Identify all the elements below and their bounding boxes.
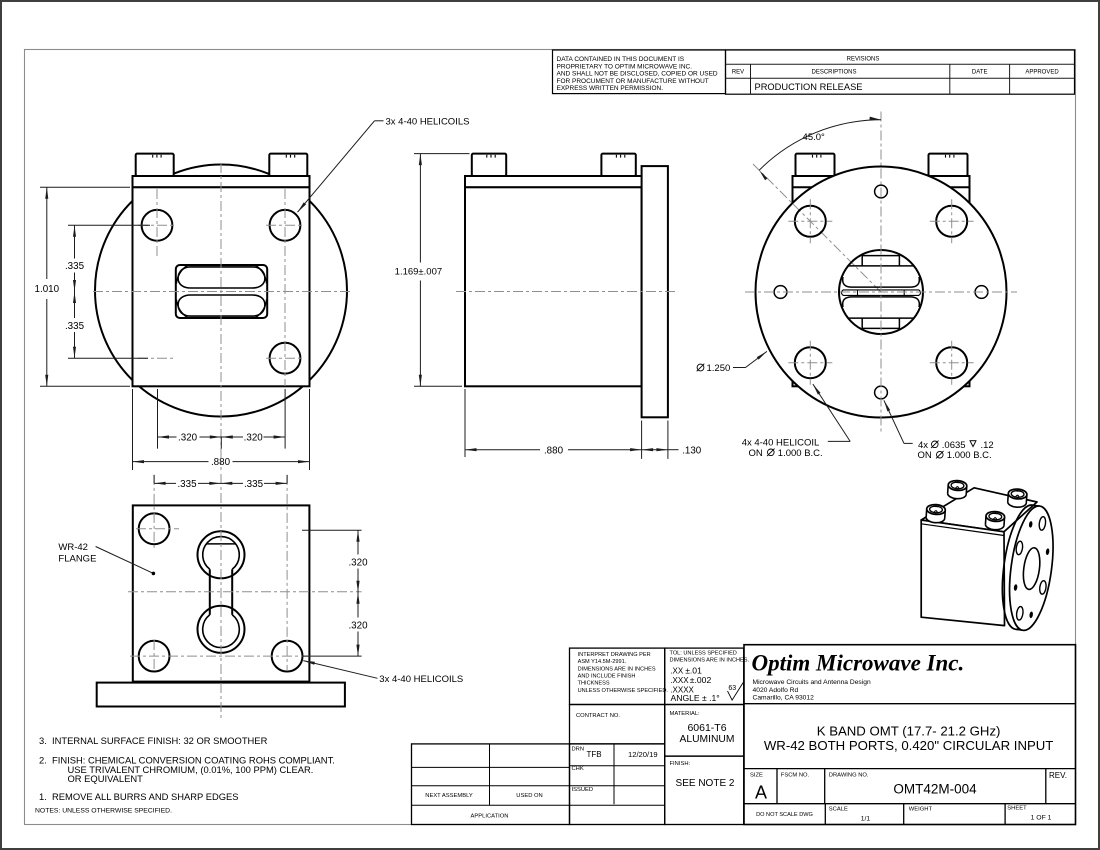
svg-text:3x 4-40 HELICOILS: 3x 4-40 HELICOILS <box>386 116 470 127</box>
svg-text:FINISH:: FINISH: <box>670 761 691 767</box>
svg-text:CONTRACT NO.: CONTRACT NO. <box>576 713 620 719</box>
svg-text:SHEET: SHEET <box>1007 806 1027 812</box>
svg-text:.320: .320 <box>244 433 264 444</box>
svg-text:.320: .320 <box>348 558 368 569</box>
svg-text:.0635: .0635 <box>942 440 966 451</box>
svg-text:K BAND OMT (17.7- 21.2 GHz): K BAND OMT (17.7- 21.2 GHz) <box>817 723 1001 738</box>
svg-text:NEXT ASSEMBLY: NEXT ASSEMBLY <box>425 793 473 799</box>
svg-text:1 OF 1: 1 OF 1 <box>1031 815 1052 822</box>
svg-text:REV.: REV. <box>1049 771 1067 780</box>
svg-text:MATERIAL:: MATERIAL: <box>670 711 701 717</box>
svg-text:.335: .335 <box>177 479 197 490</box>
svg-text:63: 63 <box>728 685 736 692</box>
svg-text:1.010: 1.010 <box>35 284 60 295</box>
svg-text:1.169±.007: 1.169±.007 <box>395 267 442 278</box>
svg-text:APPROVED: APPROVED <box>1025 70 1059 76</box>
svg-text:ISSUED: ISSUED <box>572 787 594 793</box>
svg-text:12/20/19: 12/20/19 <box>628 750 658 759</box>
svg-text:OR EQUIVALENT: OR EQUIVALENT <box>68 773 144 784</box>
svg-text:TFB: TFB <box>587 750 602 759</box>
svg-text:3. INTERNAL SURFACE FINISH: 3: 3. INTERNAL SURFACE FINISH: 32 OR SMOOTH… <box>39 735 268 746</box>
svg-text:SCALE: SCALE <box>829 806 848 812</box>
svg-text:DATA CONTAINED IN THIS DOCUMEN: DATA CONTAINED IN THIS DOCUMENT IS <box>557 56 685 63</box>
svg-text:.335: .335 <box>65 321 85 332</box>
svg-text:WEIGHT: WEIGHT <box>909 806 933 812</box>
svg-text:ALUMINUM: ALUMINUM <box>680 734 735 745</box>
svg-text:USED ON: USED ON <box>516 793 542 799</box>
svg-text:Camarillo, CA 93012: Camarillo, CA 93012 <box>753 694 815 701</box>
svg-text:Microwave Circuits and Antenna: Microwave Circuits and Antenna Design <box>753 679 871 686</box>
svg-text:.XX: .XX <box>670 667 684 676</box>
svg-text:ON: ON <box>749 448 763 459</box>
svg-text:ASM Y14.5M-2991.: ASM Y14.5M-2991. <box>578 659 627 665</box>
svg-text:DESCRIPTIONS: DESCRIPTIONS <box>811 70 856 76</box>
svg-text:.130: .130 <box>682 445 702 456</box>
svg-text:ON: ON <box>918 450 932 461</box>
svg-text:1. REMOVE ALL BURRS AND SHARP: 1. REMOVE ALL BURRS AND SHARP EDGES <box>39 791 239 802</box>
svg-text:INTERPRET DRAWING PER: INTERPRET DRAWING PER <box>578 652 651 658</box>
svg-text:DIMENSIONS ARE IN INCHES.: DIMENSIONS ARE IN INCHES. <box>670 658 750 664</box>
svg-text:PRODUCTION RELEASE: PRODUCTION RELEASE <box>755 82 863 92</box>
svg-text:.880: .880 <box>544 445 564 456</box>
svg-text:SEE NOTE 2: SEE NOTE 2 <box>676 778 735 789</box>
svg-text:THICKNESS: THICKNESS <box>578 681 610 687</box>
svg-text:.320: .320 <box>348 621 368 632</box>
svg-text:1/1: 1/1 <box>861 815 871 822</box>
svg-text:.XXX: .XXX <box>670 676 689 685</box>
svg-text:.12: .12 <box>981 440 994 451</box>
svg-text:APPLICATION: APPLICATION <box>471 813 509 819</box>
svg-text:DIMENSIONS ARE IN INCHES: DIMENSIONS ARE IN INCHES <box>578 666 656 672</box>
svg-text:DO NOT SCALE DWG: DO NOT SCALE DWG <box>756 812 813 818</box>
svg-text:1.000 B.C.: 1.000 B.C. <box>947 450 992 461</box>
svg-text:FSCM NO.: FSCM NO. <box>781 772 810 778</box>
svg-text:±.01: ±.01 <box>685 666 702 676</box>
svg-text:1.250: 1.250 <box>707 363 731 374</box>
svg-text:FOR PROCUMENT OR MANUFACTURE W: FOR PROCUMENT OR MANUFACTURE WITHOUT <box>557 78 709 85</box>
svg-text:NOTES: UNLESS OTHERWISE SPECIF: NOTES: UNLESS OTHERWISE SPECIFIED. <box>35 808 172 815</box>
svg-text:45.0°: 45.0° <box>803 132 825 143</box>
svg-text:.335: .335 <box>244 479 264 490</box>
svg-text:ANGLE ± .1°: ANGLE ± .1° <box>671 693 720 703</box>
svg-text:REV: REV <box>732 70 744 76</box>
svg-text:A: A <box>755 782 767 802</box>
svg-text:4020 Adolfo Rd: 4020 Adolfo Rd <box>753 687 799 694</box>
svg-text:AND SHALL NOT BE DISCLOSED, CO: AND SHALL NOT BE DISCLOSED, COPIED OR US… <box>557 71 718 78</box>
svg-text:OMT42M-004: OMT42M-004 <box>893 782 977 797</box>
svg-text:WR-42 BOTH PORTS, 0.420" CIRCU: WR-42 BOTH PORTS, 0.420" CIRCULAR INPUT <box>764 738 1054 753</box>
svg-text:CHK: CHK <box>572 766 584 772</box>
svg-text:PROPRIETARY TO OPTIM MICROWAVE: PROPRIETARY TO OPTIM MICROWAVE INC. <box>557 63 693 70</box>
svg-text:.335: .335 <box>65 261 85 272</box>
svg-text:DATE: DATE <box>972 70 988 76</box>
svg-text:WR-42: WR-42 <box>58 542 88 553</box>
svg-text:FLANGE: FLANGE <box>58 554 96 565</box>
svg-text:TOL: UNLESS SPECIFIED: TOL: UNLESS SPECIFIED <box>670 650 737 656</box>
svg-text:.880: .880 <box>211 457 231 468</box>
svg-text:4x: 4x <box>918 440 928 451</box>
svg-text:Optim Microwave Inc.: Optim Microwave Inc. <box>752 651 965 676</box>
svg-text:AND INCLUDE FINISH: AND INCLUDE FINISH <box>578 673 636 679</box>
svg-text:4x 4-40 HELICOIL: 4x 4-40 HELICOIL <box>742 437 820 448</box>
svg-text:.320: .320 <box>178 433 198 444</box>
svg-text:±.002: ±.002 <box>690 675 712 685</box>
svg-text:SIZE: SIZE <box>750 772 763 778</box>
svg-text:1.000 B.C.: 1.000 B.C. <box>778 448 823 459</box>
svg-text:REVISIONS: REVISIONS <box>847 56 880 62</box>
svg-text:6061-T6: 6061-T6 <box>687 722 726 734</box>
svg-text:3x 4-40 HELICOILS: 3x 4-40 HELICOILS <box>379 674 463 685</box>
svg-text:DRN: DRN <box>572 746 585 752</box>
svg-text:EXPRESS WRITTEN PERMISSION.: EXPRESS WRITTEN PERMISSION. <box>557 85 664 92</box>
svg-text:DRAWING NO.: DRAWING NO. <box>829 772 869 778</box>
svg-text:UNLESS OTHERWISE SPECIFIED.: UNLESS OTHERWISE SPECIFIED. <box>578 688 669 694</box>
